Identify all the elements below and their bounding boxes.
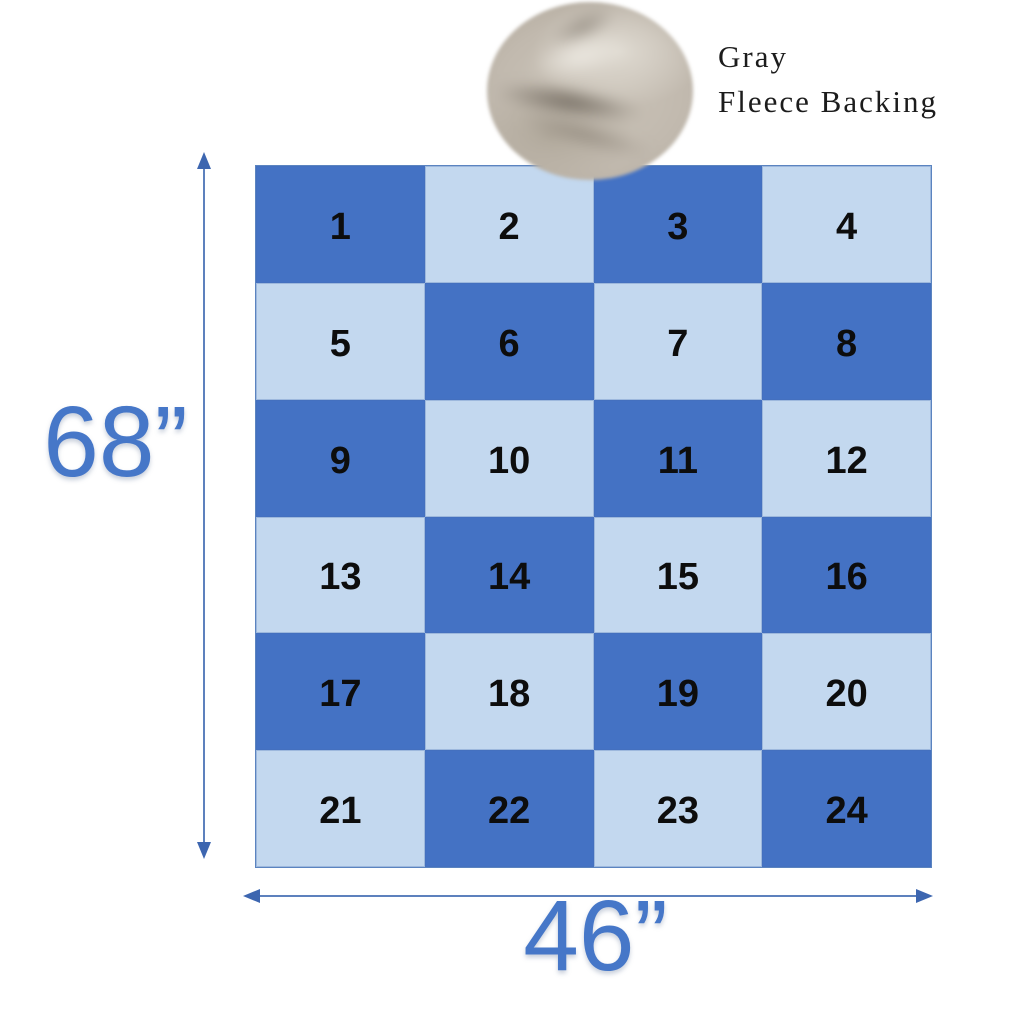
quilt-block-21: 21 <box>256 750 425 867</box>
fleece-swatch-image <box>487 2 693 180</box>
quilt-block-6: 6 <box>425 283 594 400</box>
quilt-block-18: 18 <box>425 633 594 750</box>
quilt-block-10: 10 <box>425 400 594 517</box>
quilt-block-19: 19 <box>594 633 763 750</box>
quilt-block-1: 1 <box>256 166 425 283</box>
backing-annotation-line2: Fleece Backing <box>718 79 938 124</box>
backing-annotation: Gray Fleece Backing <box>718 34 938 124</box>
quilt-block-11: 11 <box>594 400 763 517</box>
quilt-block-13: 13 <box>256 517 425 634</box>
quilt-block-4: 4 <box>762 166 931 283</box>
quilt-block-24: 24 <box>762 750 931 867</box>
quilt-layout-diagram: Gray Fleece Backing 12345678910111213141… <box>0 0 1024 1024</box>
height-dimension-arrow <box>197 152 211 859</box>
width-dimension-label: 46” <box>488 886 703 986</box>
quilt-block-20: 20 <box>762 633 931 750</box>
quilt-block-2: 2 <box>425 166 594 283</box>
quilt-block-8: 8 <box>762 283 931 400</box>
quilt-block-12: 12 <box>762 400 931 517</box>
quilt-block-17: 17 <box>256 633 425 750</box>
quilt-block-22: 22 <box>425 750 594 867</box>
backing-annotation-line1: Gray <box>718 34 938 79</box>
quilt-block-23: 23 <box>594 750 763 867</box>
quilt-block-3: 3 <box>594 166 763 283</box>
quilt-block-16: 16 <box>762 517 931 634</box>
quilt-block-9: 9 <box>256 400 425 517</box>
quilt-grid: 123456789101112131415161718192021222324 <box>255 165 932 868</box>
quilt-block-15: 15 <box>594 517 763 634</box>
height-dimension-label: 68” <box>28 392 203 492</box>
quilt-block-5: 5 <box>256 283 425 400</box>
quilt-block-7: 7 <box>594 283 763 400</box>
quilt-block-14: 14 <box>425 517 594 634</box>
